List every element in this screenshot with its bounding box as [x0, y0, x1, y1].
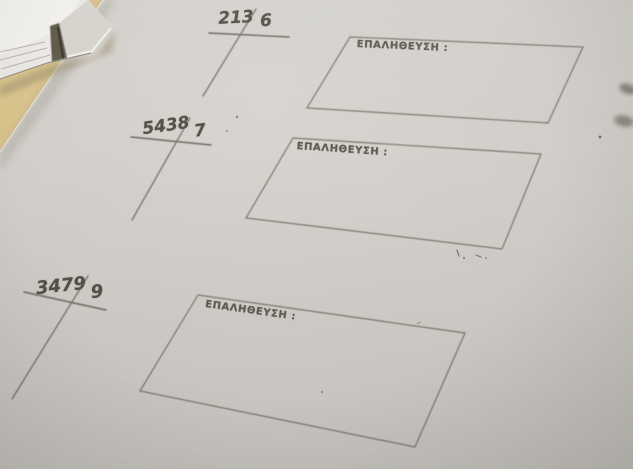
pencil-dot: [599, 136, 602, 139]
pencil-dash: [417, 322, 421, 324]
smudge-mark: [618, 81, 633, 96]
photo-of-worksheet: 213 6 5438 7 3479 9 ΕΠΑΛΗΘΕΥΣΗ : ΕΠΑΛΗΘΕ…: [0, 0, 633, 469]
pencil-dot: [226, 130, 228, 132]
stray-marks: [226, 81, 633, 393]
worksheet-drawing-overlay: [0, 0, 633, 469]
division-divisor: 7: [193, 120, 208, 141]
division-dividend: 213: [218, 7, 254, 29]
division-divisor: 9: [90, 281, 105, 303]
pencil-scribble: [457, 250, 459, 256]
pencil-scribble: [476, 255, 481, 257]
pencil-dot: [463, 257, 465, 259]
verification-box: [140, 295, 465, 447]
pencil-dot: [321, 391, 323, 393]
pencil-dot: [236, 116, 238, 118]
smudge-mark: [613, 114, 633, 129]
division-underline: [209, 33, 289, 37]
pencil-dot: [485, 257, 487, 259]
division-divisor: 6: [260, 11, 273, 32]
verification-box: [246, 138, 541, 249]
